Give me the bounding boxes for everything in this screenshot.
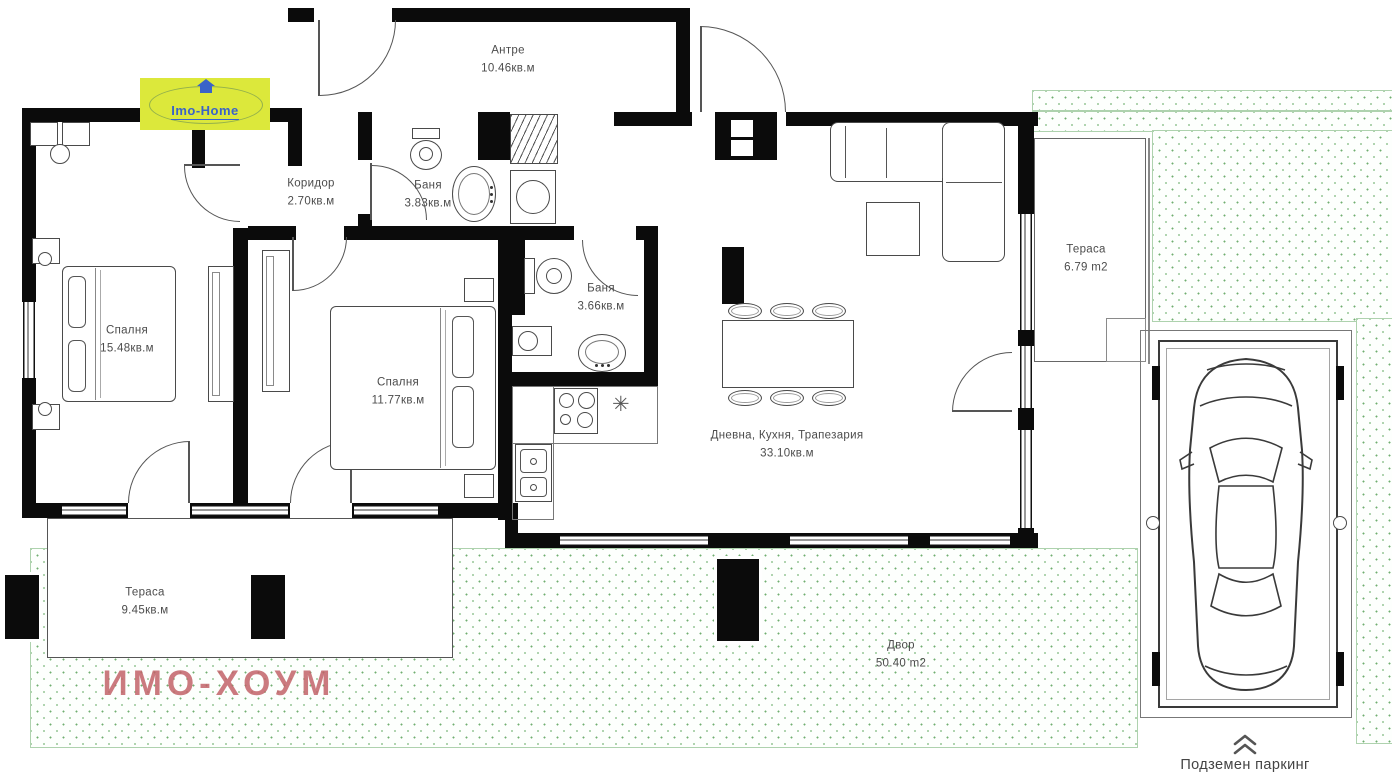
grass-strip-top-1 <box>1032 90 1392 111</box>
window <box>1020 214 1032 330</box>
column <box>2 572 42 642</box>
room-area: 10.46кв.м <box>481 60 535 78</box>
parking-marker <box>1333 516 1347 530</box>
window <box>790 535 908 546</box>
window <box>930 535 1010 546</box>
boiler-icon <box>50 144 70 164</box>
door-arc <box>128 441 190 503</box>
room-name: Коридор <box>287 175 335 193</box>
wall <box>22 378 36 518</box>
burner-icon <box>559 393 574 408</box>
vent-fan-icon: ✳ <box>612 394 630 415</box>
nightstand-icon <box>464 474 494 498</box>
toilet-bowl <box>419 147 433 161</box>
wall <box>676 8 690 118</box>
door-arc <box>700 26 786 112</box>
window <box>23 302 35 378</box>
wall <box>644 226 658 386</box>
chair-icon <box>812 390 846 406</box>
room-label-dvor: Двор 50.40 m2 <box>876 637 926 674</box>
toilet-tank <box>524 258 535 294</box>
faucet-dot <box>607 364 610 367</box>
room-area: 33.10кв.м <box>711 445 864 463</box>
sofa-cushion-line <box>942 128 943 178</box>
grass-block-right <box>1152 130 1392 322</box>
room-area: 3.66кв.м <box>577 298 624 316</box>
parking-marker <box>1146 516 1160 530</box>
room-area: 15.48кв.м <box>100 340 154 358</box>
column <box>714 556 762 644</box>
toilet-bowl <box>546 268 562 284</box>
room-label-spalnya1: Спалня 15.48кв.м <box>100 322 154 359</box>
appliance-icon <box>731 140 753 156</box>
washer-icon <box>62 122 90 146</box>
blanket-fold <box>95 268 96 400</box>
sink-basin <box>585 340 619 364</box>
faucet-dot <box>490 200 493 203</box>
grass-strip-right <box>1356 318 1392 744</box>
wall <box>288 108 302 166</box>
pillow-icon <box>68 340 86 392</box>
room-label-antre: Антре 10.46кв.м <box>481 42 535 79</box>
room-name: Антре <box>481 42 535 60</box>
room-name: Спалня <box>100 322 154 340</box>
wall <box>392 8 690 22</box>
parking-tick <box>1152 366 1160 400</box>
drain-dot <box>530 484 537 491</box>
room-name: Тераса <box>121 584 168 602</box>
blanket-fold <box>440 308 441 468</box>
room-label-terasa-bottom: Тераса 9.45кв.м <box>121 584 168 621</box>
chevron-up-icon <box>1231 733 1259 756</box>
burner-icon <box>577 412 593 428</box>
window <box>560 535 708 546</box>
parking-tick <box>1152 652 1160 686</box>
window <box>1020 346 1032 408</box>
door-opening <box>290 503 352 518</box>
room-name: Баня <box>404 177 451 195</box>
room-name: Спалня <box>372 374 425 392</box>
room-area: 6.79 m2 <box>1064 259 1108 277</box>
logo-text: Imo-Home <box>171 103 239 120</box>
room-name: Двор <box>876 637 926 655</box>
toilet-tank <box>412 128 440 139</box>
pillow-icon <box>452 316 474 378</box>
floor-plan: Подземен паркинг <box>0 0 1392 783</box>
washer-drum <box>518 331 538 351</box>
grass-strip-top-2 <box>1032 111 1392 132</box>
wardrobe-door <box>212 272 220 396</box>
car-icon <box>1178 354 1314 694</box>
drain-dot <box>530 458 537 465</box>
sofa-cushion-line <box>886 128 887 178</box>
faucet-dot <box>490 186 493 189</box>
washer-icon <box>30 122 58 146</box>
door-arc <box>952 352 1012 412</box>
window <box>354 505 438 516</box>
burner-icon <box>578 392 595 409</box>
faucet-dot <box>595 364 598 367</box>
pillow-icon <box>452 386 474 448</box>
lamp-icon <box>38 252 52 266</box>
faucet-dot <box>601 364 604 367</box>
window <box>62 505 126 516</box>
glass-door <box>1020 430 1032 528</box>
sink-basin <box>458 173 490 215</box>
column <box>248 572 288 642</box>
door-arc <box>293 237 347 291</box>
wall <box>358 226 512 240</box>
wall <box>233 228 248 505</box>
chair-icon <box>770 390 804 406</box>
chair-icon <box>728 303 762 319</box>
sofa-cushion-line <box>946 182 1002 183</box>
room-area: 50.40 m2 <box>876 655 926 673</box>
wall <box>512 226 574 240</box>
room-label-living: Дневна, Кухня, Трапезария 33.10кв.м <box>711 427 864 464</box>
wall <box>358 112 372 160</box>
parking-tick <box>1336 366 1344 400</box>
wall <box>1018 112 1034 214</box>
room-area: 9.45кв.м <box>121 602 168 620</box>
pillow-icon <box>68 276 86 328</box>
dining-table-icon <box>722 320 854 388</box>
room-area: 2.70кв.м <box>287 193 335 211</box>
door-arc <box>184 166 240 222</box>
window <box>192 505 288 516</box>
imo-home-logo: Imo-Home <box>140 78 270 130</box>
room-area: 11.77кв.м <box>372 392 425 410</box>
house-icon <box>200 85 212 93</box>
room-label-spalnya2: Спалня 11.77кв.м <box>369 374 428 411</box>
door-arc <box>320 20 396 96</box>
faucet-dot <box>490 193 493 196</box>
coffee-table-icon <box>866 202 920 256</box>
wall <box>248 226 296 240</box>
room-name: Дневна, Кухня, Трапезария <box>711 427 864 445</box>
door-opening <box>128 503 190 518</box>
room-label-koridor: Коридор 2.70кв.м <box>287 175 335 212</box>
room-name: Баня <box>577 280 624 298</box>
room-label-banya1: Баня 3.83кв.м <box>404 177 451 214</box>
appliance-icon <box>731 120 753 137</box>
closet-hangers-icon <box>510 114 558 164</box>
wall <box>1018 330 1034 346</box>
burner-icon <box>560 414 571 425</box>
room-label-terasa-top: Тераса 6.79 m2 <box>1064 241 1108 278</box>
room-name: Тераса <box>1064 241 1108 259</box>
chair-icon <box>812 303 846 319</box>
parking-label: Подземен паркинг <box>1180 757 1309 773</box>
column <box>722 247 744 304</box>
parking-tick <box>1336 652 1344 686</box>
wall <box>288 8 314 22</box>
chair-icon <box>728 390 762 406</box>
watermark: ИМО-ХОУМ <box>103 664 336 704</box>
chair-icon <box>770 303 804 319</box>
wardrobe-door <box>266 256 274 386</box>
sofa-chaise <box>942 122 1005 262</box>
sofa-arm-line <box>845 126 846 178</box>
boiler-icon <box>516 180 550 214</box>
blanket-fold <box>445 310 446 466</box>
nightstand-icon <box>464 278 494 302</box>
room-label-banya2: Баня 3.66кв.м <box>577 280 624 317</box>
room-area: 3.83кв.м <box>404 195 451 213</box>
wall <box>1018 408 1034 430</box>
wall <box>614 112 692 126</box>
lamp-icon <box>38 402 52 416</box>
wall <box>498 372 658 386</box>
wall-block <box>478 112 510 160</box>
